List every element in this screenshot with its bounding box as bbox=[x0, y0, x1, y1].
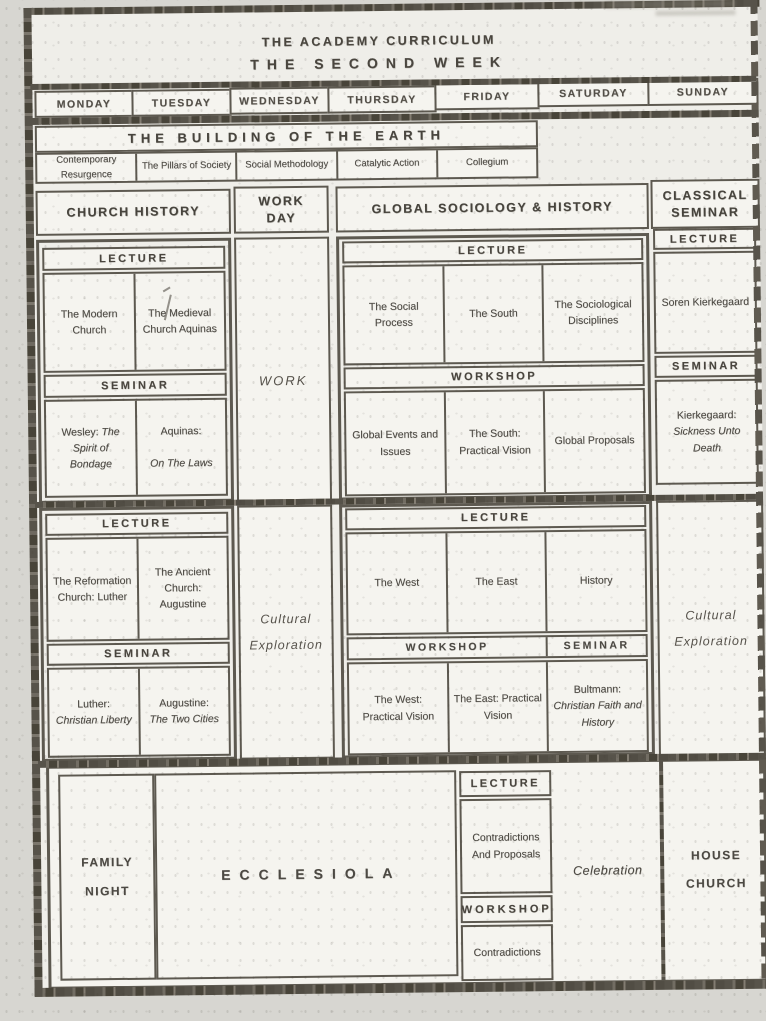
classical-pm-cell: Cultural Exploration bbox=[656, 500, 766, 757]
cell-sociological-disciplines: The Sociological Disciplines bbox=[542, 264, 643, 361]
cell-wesley-spirit-of-bondage: Wesley: The Spirit of Bondage bbox=[46, 401, 136, 496]
scan-smudge bbox=[656, 10, 736, 16]
section-header-work-day: WORK DAY bbox=[233, 186, 329, 234]
global-am-workshop-bar: WORKSHOP bbox=[344, 364, 645, 389]
cell-celebration: Celebration bbox=[554, 762, 661, 981]
cell-the-east-practical-vision: The East: Practical Vision bbox=[447, 662, 548, 752]
cell-kierkegaard-sickness-unto-death: Kierkegaard:Sickness Unto Death bbox=[655, 379, 759, 485]
cell-ancient-church-augustine: The Ancient Church: Augustine bbox=[136, 538, 228, 639]
cell-luther-christian-liberty: Luther:Christian Liberty bbox=[49, 669, 138, 756]
global-pm-workshop-row: The West: Practical Vision The East: Pra… bbox=[347, 659, 649, 755]
cell-the-east: The East bbox=[445, 532, 546, 632]
global-am-lecture-bar: LECTURE bbox=[342, 238, 643, 263]
scan-smudge bbox=[605, 0, 735, 8]
global-pm-seminar-bar: SEMINAR bbox=[545, 636, 646, 656]
scanned-curriculum-page: THE ACADEMY CURRICULUM THE SECOND WEEK M… bbox=[0, 0, 766, 1021]
day-header-monday: MONDAY bbox=[34, 90, 133, 118]
global-am-workshop-row: Global Events and Issues The South: Prac… bbox=[344, 388, 646, 496]
building-cell-pillars-of-society: The Pillars of Society bbox=[135, 153, 236, 181]
cell-family-night: FAMILY NIGHT bbox=[58, 774, 156, 981]
global-pm-lecture-bar: LECTURE bbox=[345, 505, 646, 530]
cell-the-west-practical-vision: The West: Practical Vision bbox=[349, 663, 448, 753]
work-day-am-cell: WORK bbox=[234, 237, 332, 502]
building-cells-row: Contemporary Resurgence The Pillars of S… bbox=[35, 147, 538, 184]
cell-the-south: The South bbox=[442, 265, 543, 362]
building-cell-catalytic-action: Catalytic Action bbox=[336, 150, 437, 178]
building-cell-contemporary-resurgence: Contemporary Resurgence bbox=[37, 154, 136, 182]
cell-ecclesiola: ECCLESIOLA bbox=[154, 770, 458, 979]
day-header-friday: FRIDAY bbox=[434, 82, 539, 110]
cell-history: History bbox=[545, 531, 646, 631]
global-am-lecture-row: The Social Process The South The Sociolo… bbox=[342, 262, 644, 365]
cell-augustine-two-cities: Augustine:The Two Cities bbox=[137, 668, 228, 755]
global-pm-bars-row: WORKSHOP SEMINAR bbox=[347, 634, 648, 660]
scan-sheet: THE ACADEMY CURRICULUM THE SECOND WEEK M… bbox=[0, 0, 766, 1021]
evening-workshop-bar: WORKSHOP bbox=[461, 895, 553, 923]
building-cell-collegium: Collegium bbox=[436, 149, 537, 177]
cell-aquinas-on-the-laws: Aquinas:On The Laws bbox=[134, 400, 226, 495]
global-pm-lecture-row: The West The East History bbox=[345, 529, 647, 635]
church-am-lecture-row: The Modern Church The Medieval Church Aq… bbox=[42, 271, 226, 373]
cell-the-modern-church: The Modern Church bbox=[44, 274, 134, 371]
cell-soren-kierkegaard: Soren Kierkegaard bbox=[653, 251, 757, 354]
cell-global-events-and-issues: Global Events and Issues bbox=[346, 392, 445, 494]
church-pm-seminar-row: Luther:Christian Liberty Augustine:The T… bbox=[47, 666, 231, 758]
section-header-classical-seminar: CLASSICAL SEMINAR bbox=[650, 179, 760, 229]
cell-global-proposals: Global Proposals bbox=[543, 390, 644, 492]
cell-contradictions: Contradictions bbox=[461, 924, 554, 981]
day-header-tuesday: TUESDAY bbox=[131, 89, 231, 117]
classical-am-lecture-bar: LECTURE bbox=[653, 228, 756, 250]
evening-lecture-bar: LECTURE bbox=[459, 770, 551, 797]
church-pm-lecture-row: The Reformation Church: Luther The Ancie… bbox=[45, 536, 229, 642]
cell-the-south-practical-vision: The South: Practical Vision bbox=[443, 391, 544, 493]
work-day-pm-cell: Cultural Exploration bbox=[237, 505, 335, 760]
church-pm-lecture-bar: LECTURE bbox=[45, 512, 228, 536]
church-am-seminar-bar: SEMINAR bbox=[44, 373, 227, 398]
church-am-lecture-bar: LECTURE bbox=[42, 246, 225, 271]
section-header-global-sociology: GLOBAL SOCIOLOGY & HISTORY bbox=[335, 183, 649, 233]
cell-reformation-church-luther: The Reformation Church: Luther bbox=[47, 539, 137, 640]
global-pm-workshop-bar: WORKSHOP bbox=[349, 637, 546, 658]
cell-the-medieval-church-aquinas: The Medieval Church Aquinas bbox=[133, 273, 225, 370]
classical-am-seminar-bar: SEMINAR bbox=[654, 355, 757, 378]
cell-bultmann-christian-faith-history: Bultmann:Christian Faith and History bbox=[546, 661, 647, 751]
building-cell-social-methodology: Social Methodology bbox=[235, 152, 336, 180]
cell-the-social-process: The Social Process bbox=[344, 266, 443, 363]
day-header-thursday: THURSDAY bbox=[327, 85, 436, 113]
cell-house-church: HOUSE CHURCH bbox=[666, 761, 766, 980]
section-header-church-history: CHURCH HISTORY bbox=[36, 189, 231, 236]
cell-the-west: The West bbox=[347, 533, 446, 633]
church-pm-seminar-bar: SEMINAR bbox=[47, 642, 230, 666]
church-am-seminar-row: Wesley: The Spirit of Bondage Aquinas:On… bbox=[44, 398, 228, 498]
day-header-wednesday: WEDNESDAY bbox=[229, 87, 329, 115]
cell-contradictions-and-proposals: Contradictions And Proposals bbox=[459, 798, 552, 894]
